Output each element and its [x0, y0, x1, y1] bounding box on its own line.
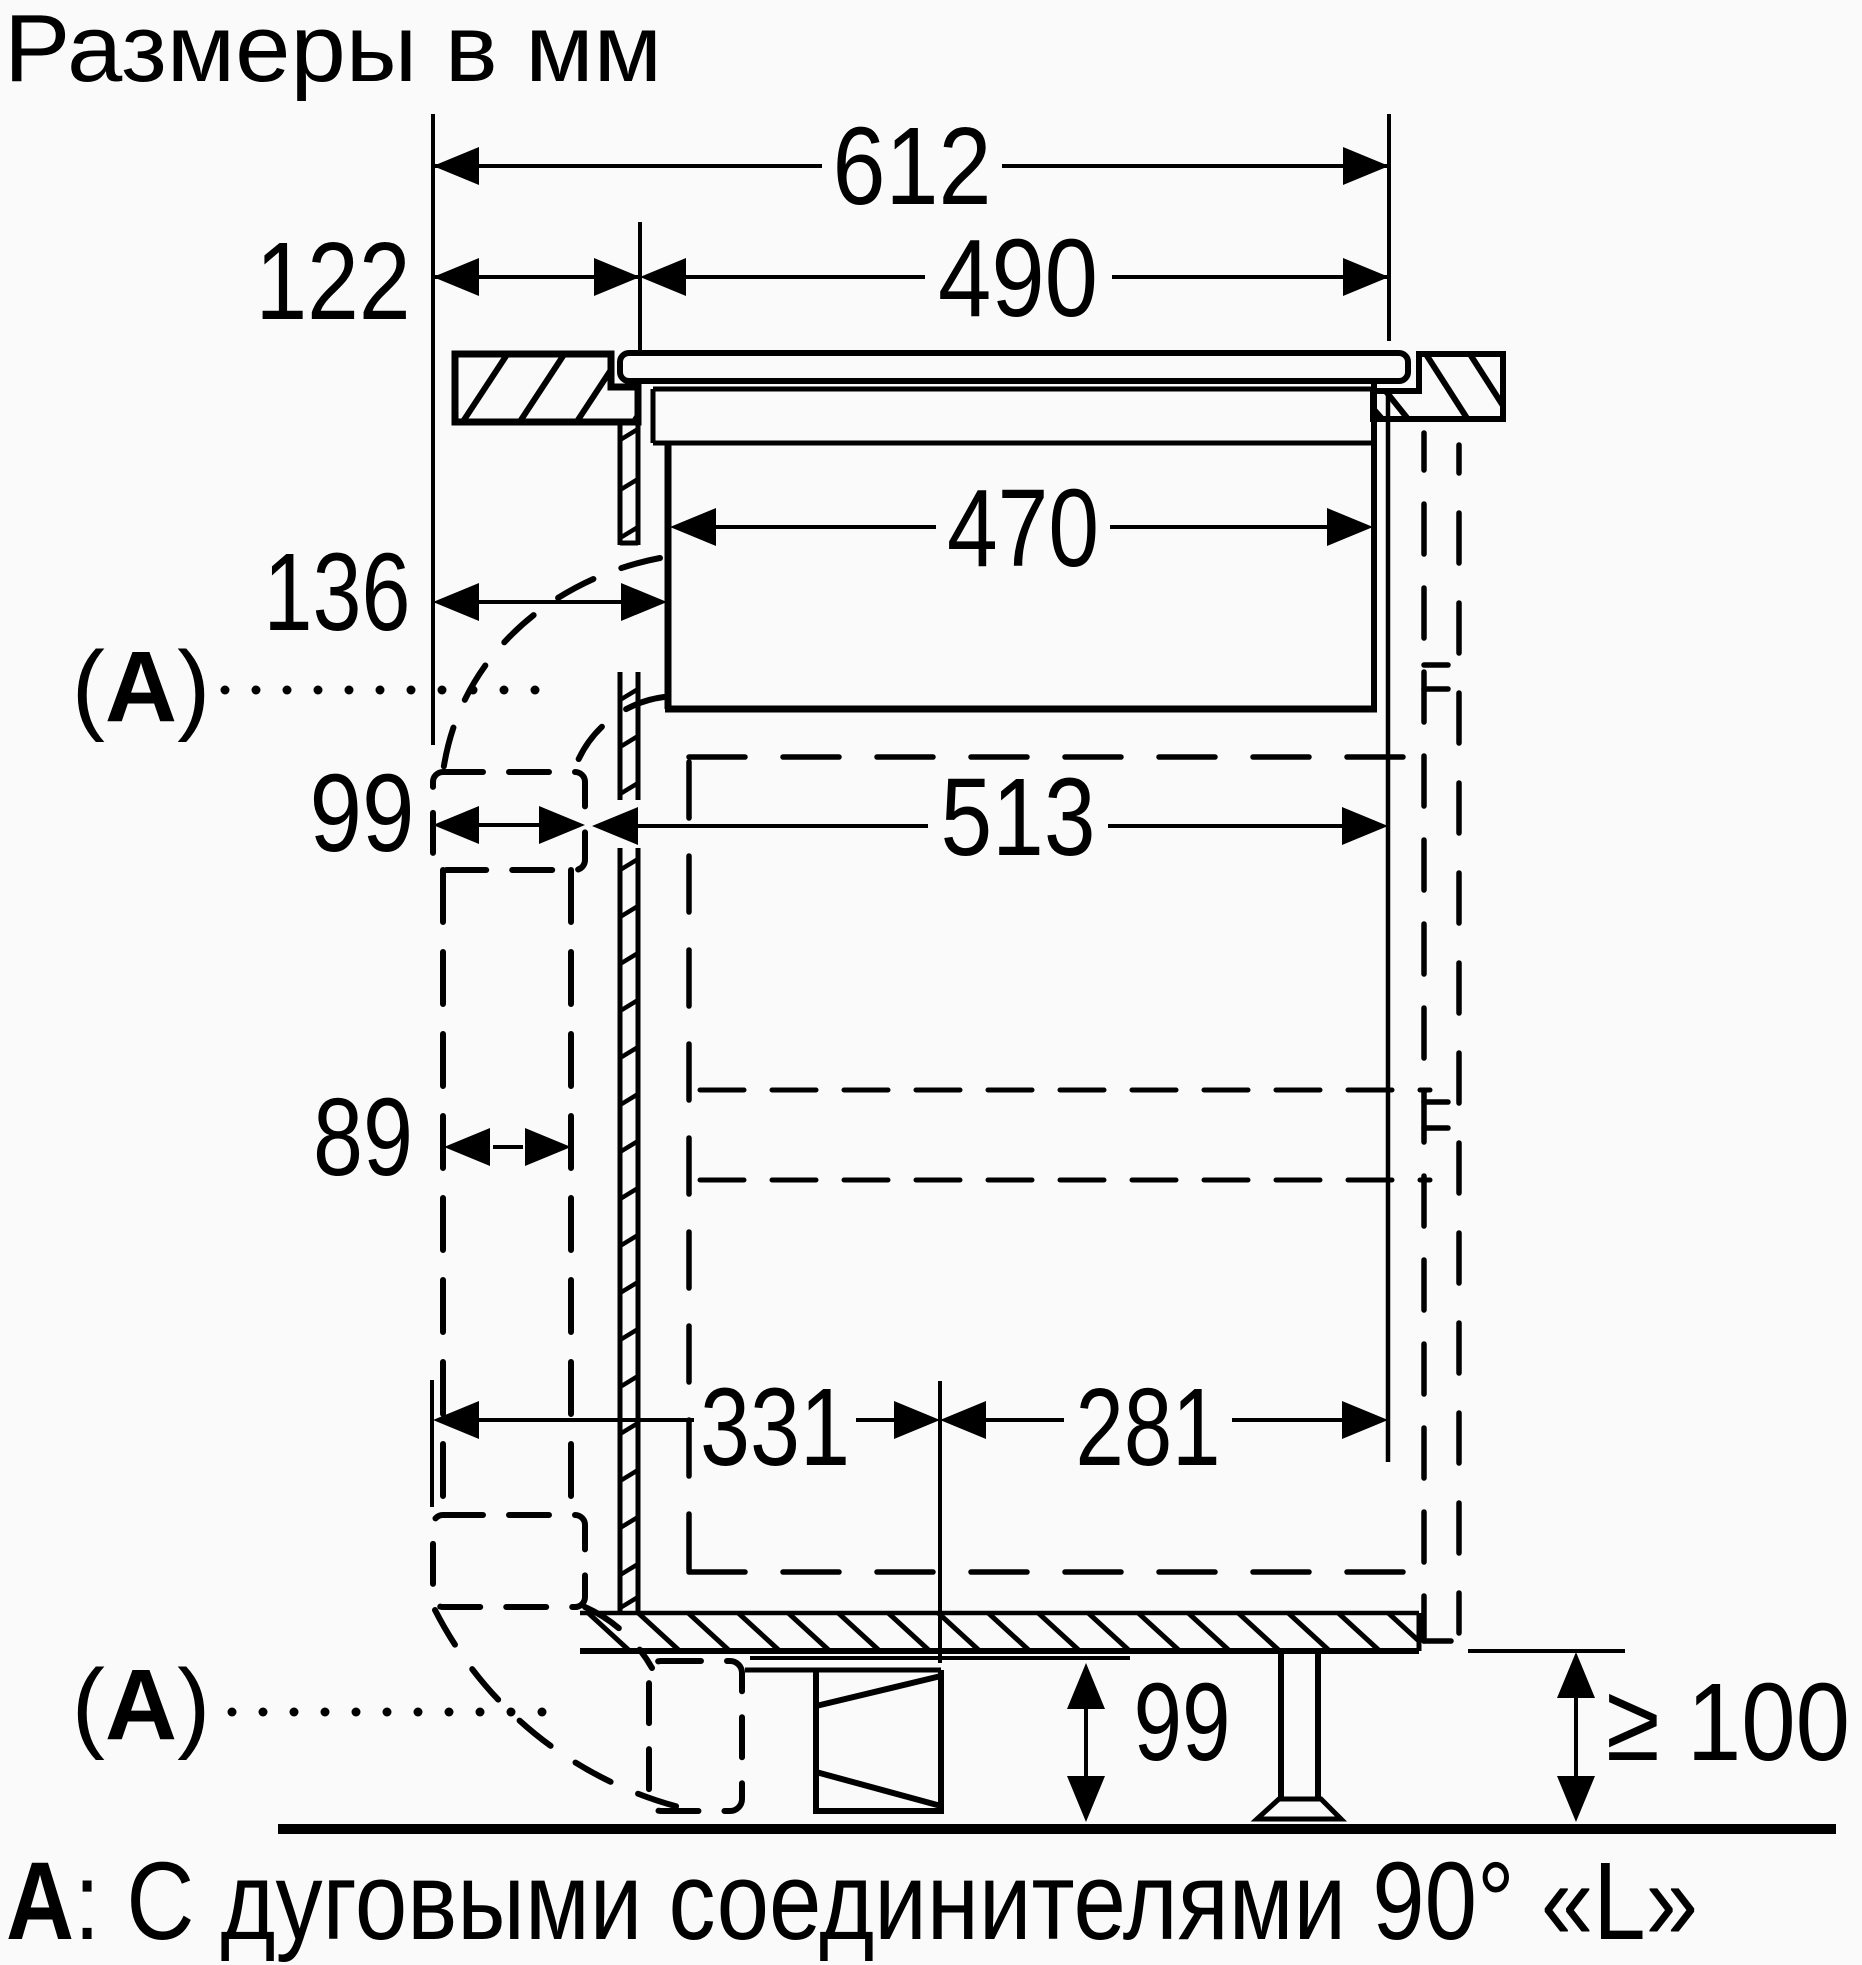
svg-text:470: 470: [947, 467, 1099, 590]
svg-text:99: 99: [1134, 1661, 1231, 1784]
svg-text:≥ 100: ≥ 100: [1606, 1661, 1850, 1784]
svg-text:Размеры в мм: Размеры в мм: [4, 0, 662, 102]
svg-text:281: 281: [1076, 1366, 1221, 1489]
svg-text:(A): (A): [72, 1649, 211, 1761]
svg-text:89: 89: [313, 1076, 413, 1199]
svg-text:(A): (A): [72, 631, 211, 743]
svg-text:122: 122: [256, 220, 411, 343]
svg-text:A: С дуговыми соединителями 90: A: С дуговыми соединителями 90° «L»: [6, 1840, 1698, 1963]
svg-text:490: 490: [938, 217, 1098, 340]
svg-text:99: 99: [310, 752, 415, 875]
svg-text:331: 331: [700, 1366, 850, 1489]
svg-text:612: 612: [833, 105, 992, 228]
svg-text:513: 513: [941, 756, 1096, 879]
svg-text:136: 136: [264, 531, 411, 654]
